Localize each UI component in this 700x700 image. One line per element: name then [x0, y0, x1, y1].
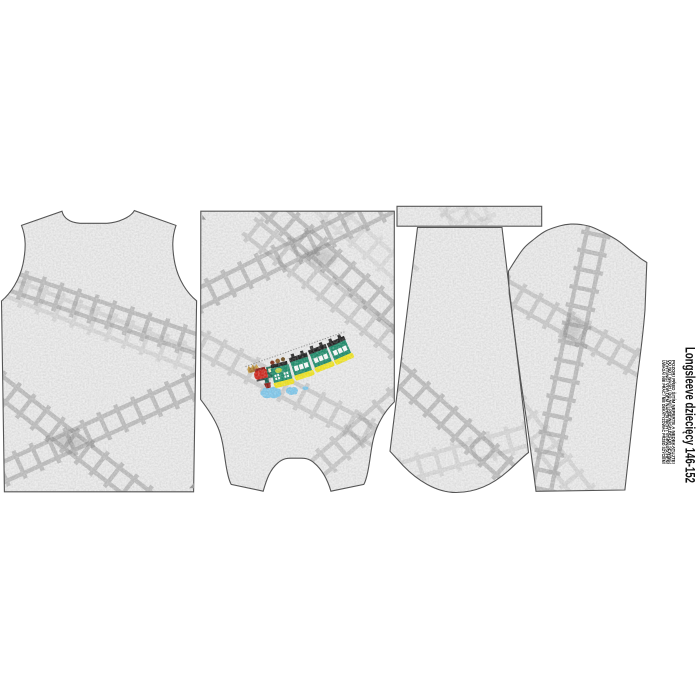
- svg-text:POZOR! PŘED ŠITÍM NEPERTE A NE: POZOR! PŘED ŠITÍM NEPERTE A NEDEKATUJTE!: [671, 360, 676, 464]
- svg-text:Longsleeve dziecięcy 146-152: Longsleeve dziecięcy 146-152: [683, 347, 698, 483]
